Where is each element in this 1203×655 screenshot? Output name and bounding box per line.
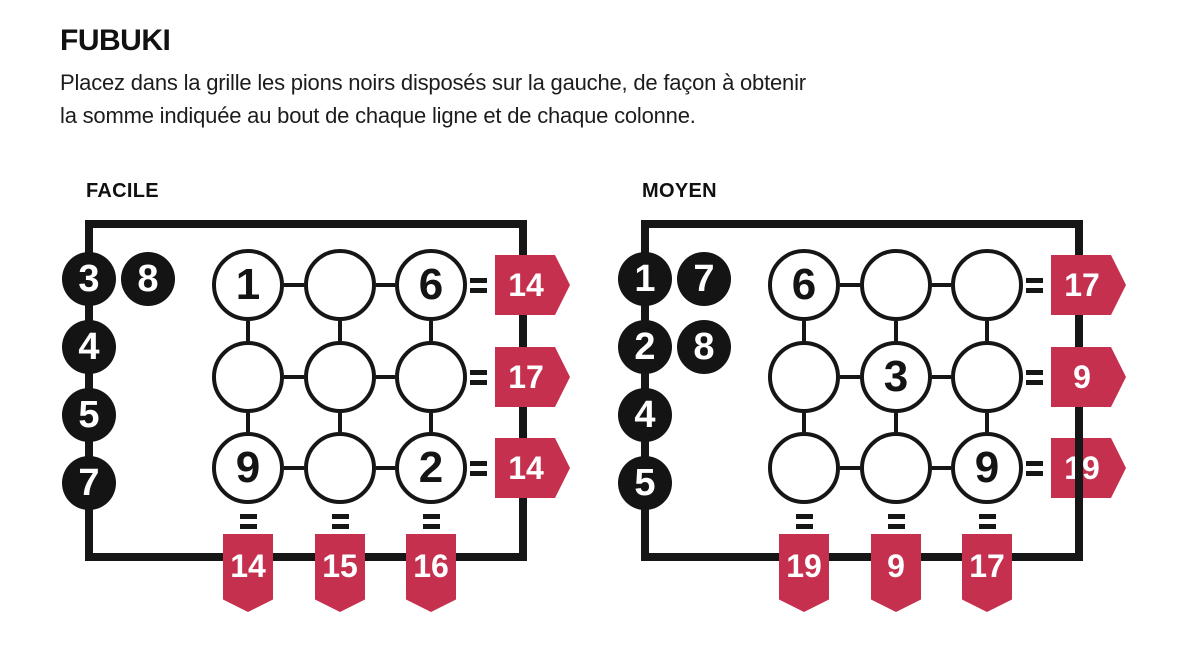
token: 2 — [618, 320, 672, 374]
row-sum-badge: 14 — [495, 438, 570, 498]
equals-icon — [470, 370, 487, 385]
equals-icon — [240, 514, 257, 529]
equals-icon — [423, 514, 440, 529]
equals-icon — [888, 514, 905, 529]
col-sum-badge: 9 — [871, 534, 921, 612]
token: 8 — [677, 320, 731, 374]
grid-cell — [304, 432, 376, 504]
row-sum-badge: 14 — [495, 255, 570, 315]
puzzle-facile: FACILE 1 6 9 2 3 8 4 5 7 1 — [0, 0, 647, 655]
grid-cell — [860, 249, 932, 321]
grid-cell — [951, 249, 1023, 321]
token: 1 — [618, 252, 672, 306]
row-sum-badge: 17 — [495, 347, 570, 407]
col-sum-badge: 19 — [779, 534, 829, 612]
token: 4 — [618, 388, 672, 442]
equals-icon — [1026, 278, 1043, 293]
equals-icon — [796, 514, 813, 529]
grid-cell: 6 — [395, 249, 467, 321]
token: 3 — [62, 252, 116, 306]
row-sum-badge: 17 — [1051, 255, 1126, 315]
col-sum-badge: 16 — [406, 534, 456, 612]
equals-icon — [979, 514, 996, 529]
token: 8 — [121, 252, 175, 306]
puzzle-moyen: MOYEN 6 3 9 1 7 2 8 4 5 — [556, 0, 1203, 655]
grid-cell — [768, 432, 840, 504]
grid-cell: 2 — [395, 432, 467, 504]
grid-cell: 9 — [951, 432, 1023, 504]
grid-cell — [860, 432, 932, 504]
token: 7 — [62, 456, 116, 510]
token: 7 — [677, 252, 731, 306]
equals-icon — [332, 514, 349, 529]
col-sum-badge: 14 — [223, 534, 273, 612]
grid-cell: 6 — [768, 249, 840, 321]
grid-cell: 3 — [860, 341, 932, 413]
token: 4 — [62, 320, 116, 374]
page: FUBUKI Placez dans la grille les pions n… — [0, 0, 1203, 655]
token: 5 — [618, 456, 672, 510]
grid-cell — [395, 341, 467, 413]
col-sum-badge: 15 — [315, 534, 365, 612]
equals-icon — [1026, 461, 1043, 476]
grid-cell — [951, 341, 1023, 413]
equals-icon — [470, 461, 487, 476]
token: 5 — [62, 388, 116, 442]
row-sum-badge: 9 — [1051, 347, 1126, 407]
grid-cell: 9 — [212, 432, 284, 504]
grid-cell: 1 — [212, 249, 284, 321]
equals-icon — [470, 278, 487, 293]
grid-cell — [304, 249, 376, 321]
grid-cell — [768, 341, 840, 413]
equals-icon — [1026, 370, 1043, 385]
puzzle-label: FACILE — [86, 180, 159, 203]
grid-cell — [212, 341, 284, 413]
grid-cell — [304, 341, 376, 413]
col-sum-badge: 17 — [962, 534, 1012, 612]
puzzle-label: MOYEN — [642, 180, 717, 203]
